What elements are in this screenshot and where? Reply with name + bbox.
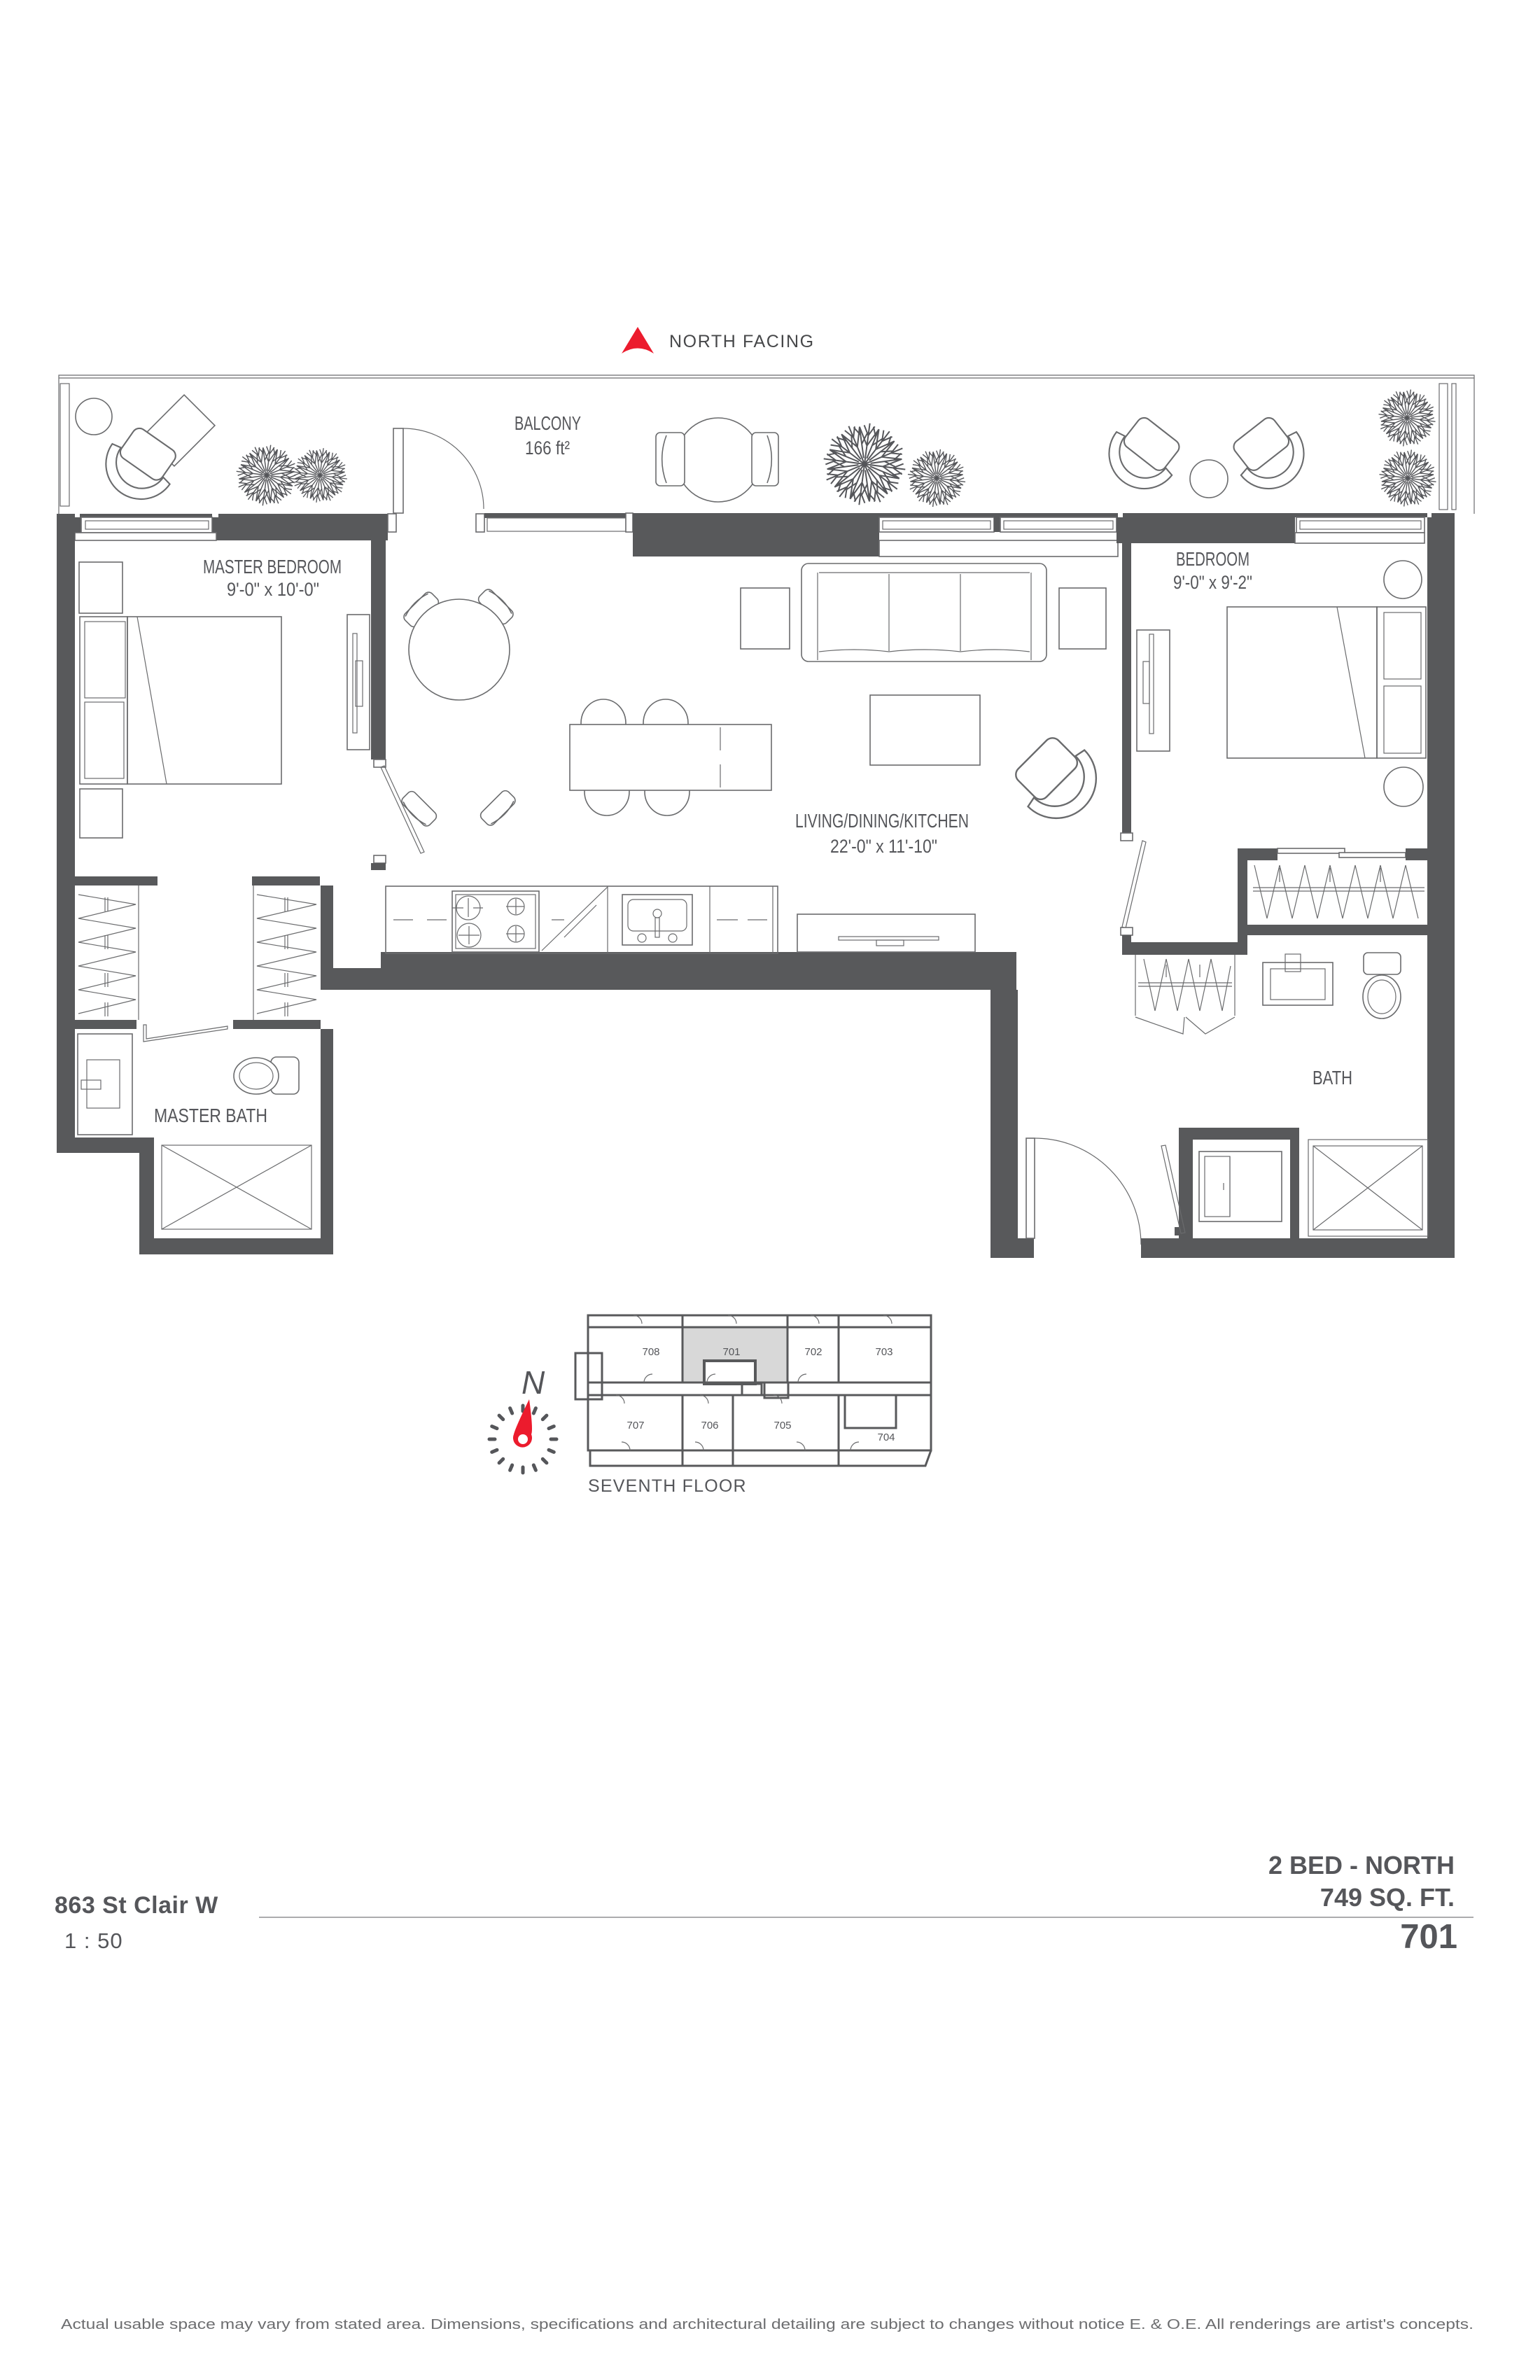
svg-text:9'-0" x 9'-2": 9'-0" x 9'-2" bbox=[1173, 572, 1252, 593]
svg-text:MASTER BEDROOM: MASTER BEDROOM bbox=[203, 556, 342, 577]
svg-text:166 ft²: 166 ft² bbox=[525, 437, 570, 458]
svg-text:749 SQ. FT.: 749 SQ. FT. bbox=[1320, 1883, 1455, 1912]
svg-text:MASTER BATH: MASTER BATH bbox=[154, 1105, 267, 1126]
svg-text:705: 705 bbox=[773, 1420, 791, 1431]
svg-text:N: N bbox=[521, 1364, 545, 1401]
svg-text:702: 702 bbox=[804, 1346, 822, 1358]
svg-text:708: 708 bbox=[642, 1346, 659, 1358]
svg-text:NORTH FACING: NORTH FACING bbox=[669, 332, 815, 351]
svg-text:BEDROOM: BEDROOM bbox=[1176, 548, 1249, 570]
svg-text:Actual usable space may vary f: Actual usable space may vary from stated… bbox=[61, 2317, 1473, 2332]
svg-text:1 : 50: 1 : 50 bbox=[64, 1928, 123, 1953]
svg-text:BALCONY: BALCONY bbox=[514, 412, 581, 434]
svg-text:703: 703 bbox=[875, 1346, 892, 1358]
svg-text:863 St Clair W: 863 St Clair W bbox=[55, 1892, 218, 1919]
svg-text:706: 706 bbox=[701, 1420, 718, 1431]
svg-text:9'-0" x 10'-0": 9'-0" x 10'-0" bbox=[227, 579, 319, 600]
svg-text:707: 707 bbox=[626, 1420, 644, 1431]
svg-text:BATH: BATH bbox=[1312, 1067, 1352, 1088]
svg-text:701: 701 bbox=[722, 1346, 740, 1358]
svg-text:2 BED - NORTH: 2 BED - NORTH bbox=[1268, 1851, 1455, 1879]
svg-text:701: 701 bbox=[1400, 1918, 1457, 1956]
svg-text:LIVING/DINING/KITCHEN: LIVING/DINING/KITCHEN bbox=[795, 810, 969, 832]
svg-text:22'-0" x 11'-10": 22'-0" x 11'-10" bbox=[830, 836, 937, 857]
svg-text:SEVENTH FLOOR: SEVENTH FLOOR bbox=[588, 1476, 747, 1496]
svg-text:704: 704 bbox=[877, 1431, 895, 1443]
